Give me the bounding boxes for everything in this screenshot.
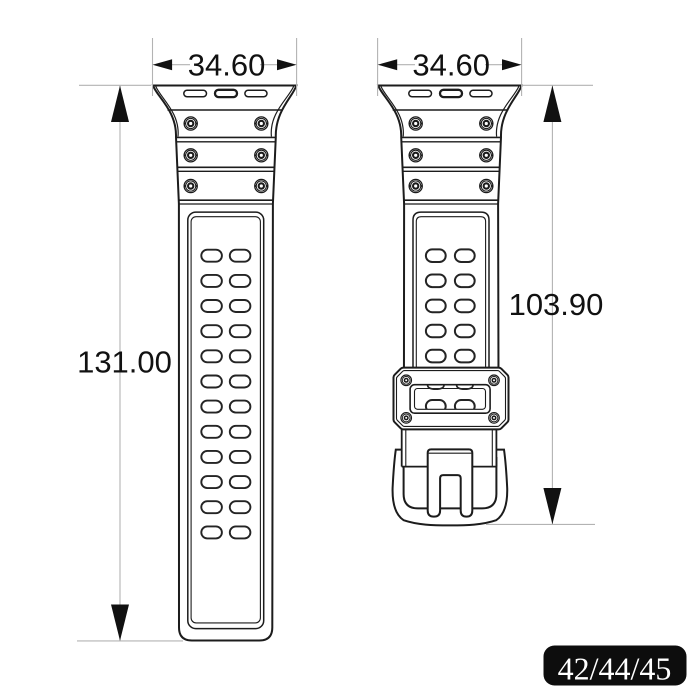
svg-text:103.90: 103.90 [509,287,604,322]
svg-text:42/44/45: 42/44/45 [558,651,672,687]
svg-text:131.00: 131.00 [77,345,172,380]
svg-text:34.60: 34.60 [412,48,490,83]
svg-text:34.60: 34.60 [188,48,266,83]
